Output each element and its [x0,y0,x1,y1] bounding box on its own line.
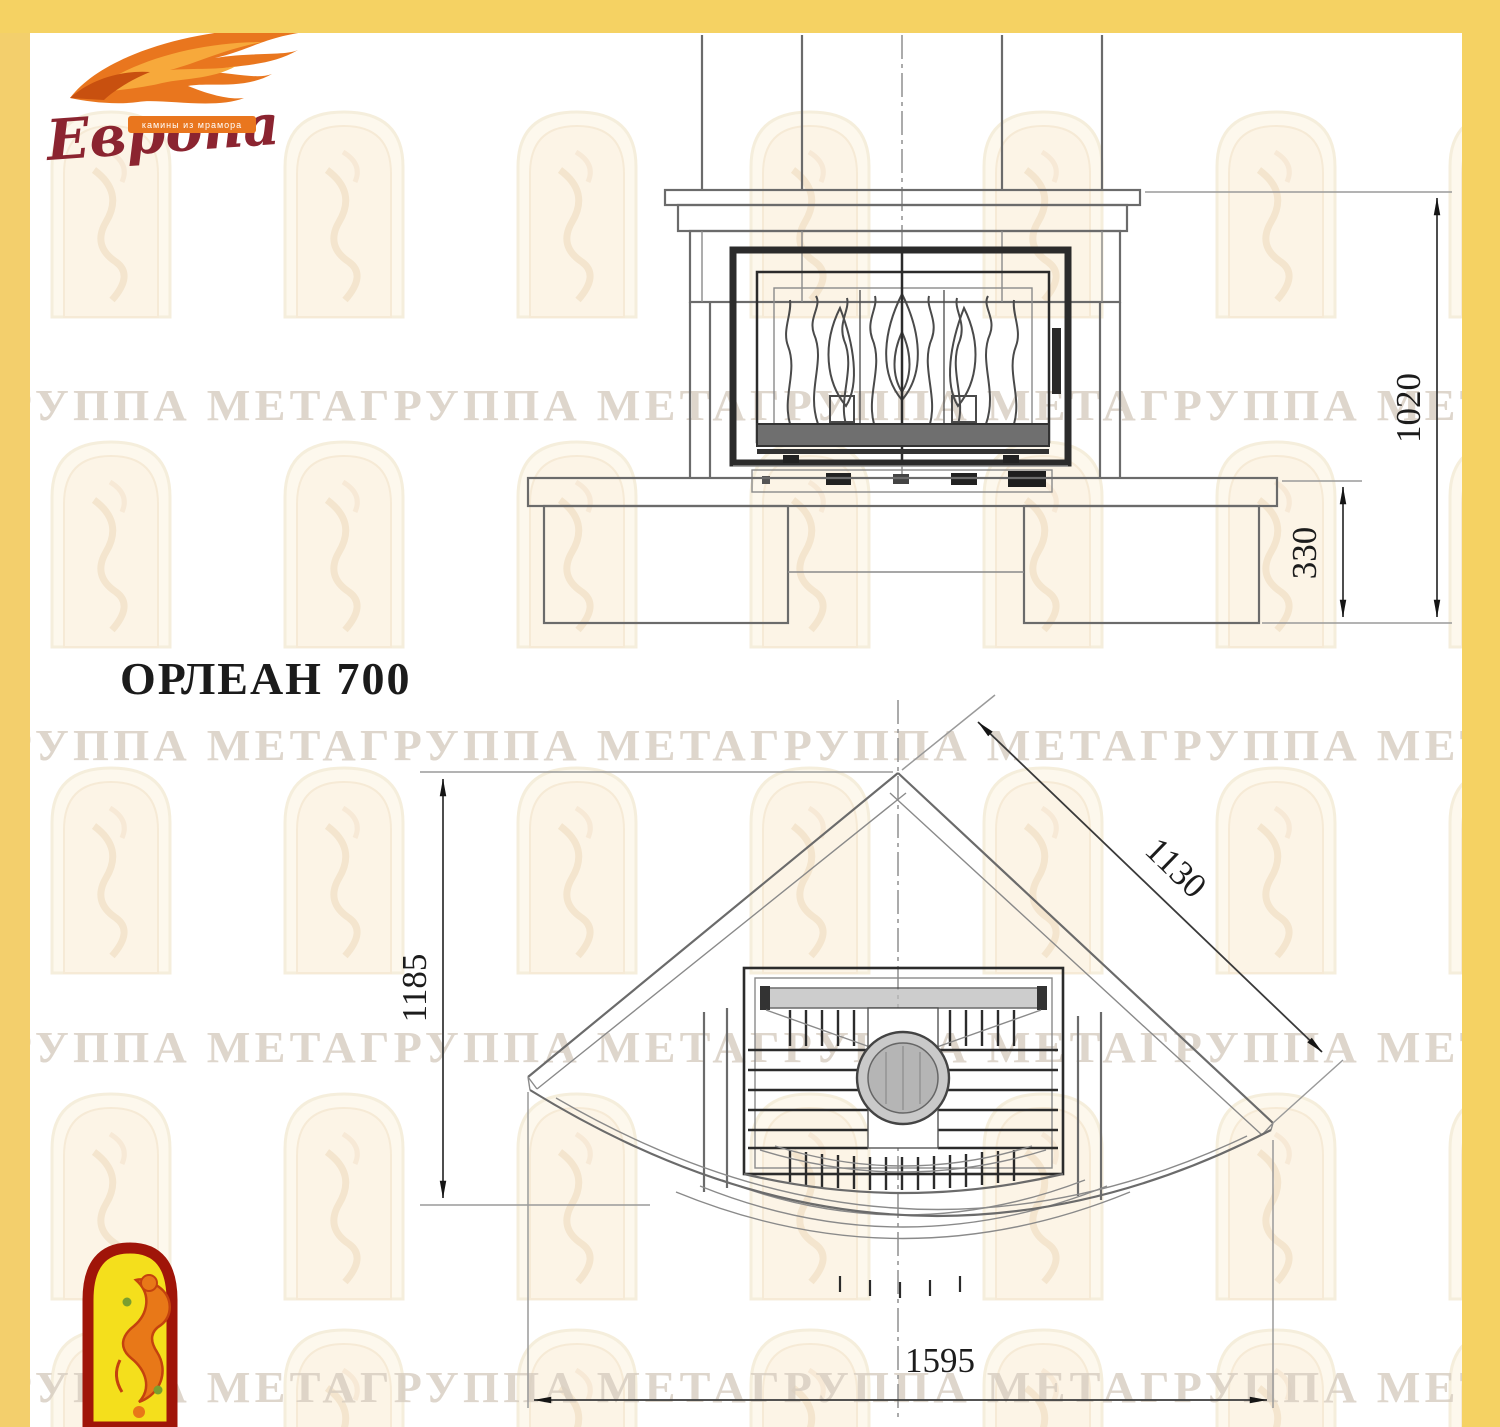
dim-label-330: 330 [1285,527,1324,580]
border-right [1462,33,1500,1427]
brand-tagline-ribbon: камины из мрамора [128,116,256,133]
watermark-text-row: ГРУППА МЕТАГРУППА МЕТАГРУППА МЕТАГРУППА … [0,381,1500,430]
firebird-emblem [88,1248,172,1427]
brand-tagline: камины из мрамора [142,120,242,130]
border-left [0,33,30,1427]
dim-label-1595: 1595 [905,1341,975,1380]
watermark-text-row: ГРУППА МЕТАГРУППА МЕТАГРУППА МЕТАГРУППА … [0,1363,1500,1412]
technical-drawing-page: ГРУППА МЕТАГРУППА МЕТАГРУППА МЕТАГРУППА … [0,0,1500,1427]
page-title: ОРЛЕАН 700 [120,653,411,704]
door-handle [1052,328,1061,394]
border-top [0,0,1500,33]
ash-lip [757,424,1049,446]
watermark-text-row: ГРУППА МЕТАГРУППА МЕТАГРУППА МЕТАГРУППА … [0,1023,1500,1072]
watermark-text-row: ГРУППА МЕТАГРУППА МЕТАГРУППА МЕТАГРУППА … [0,721,1500,770]
dim-label-1020: 1020 [1389,373,1428,443]
dim-label-1185: 1185 [395,954,434,1023]
